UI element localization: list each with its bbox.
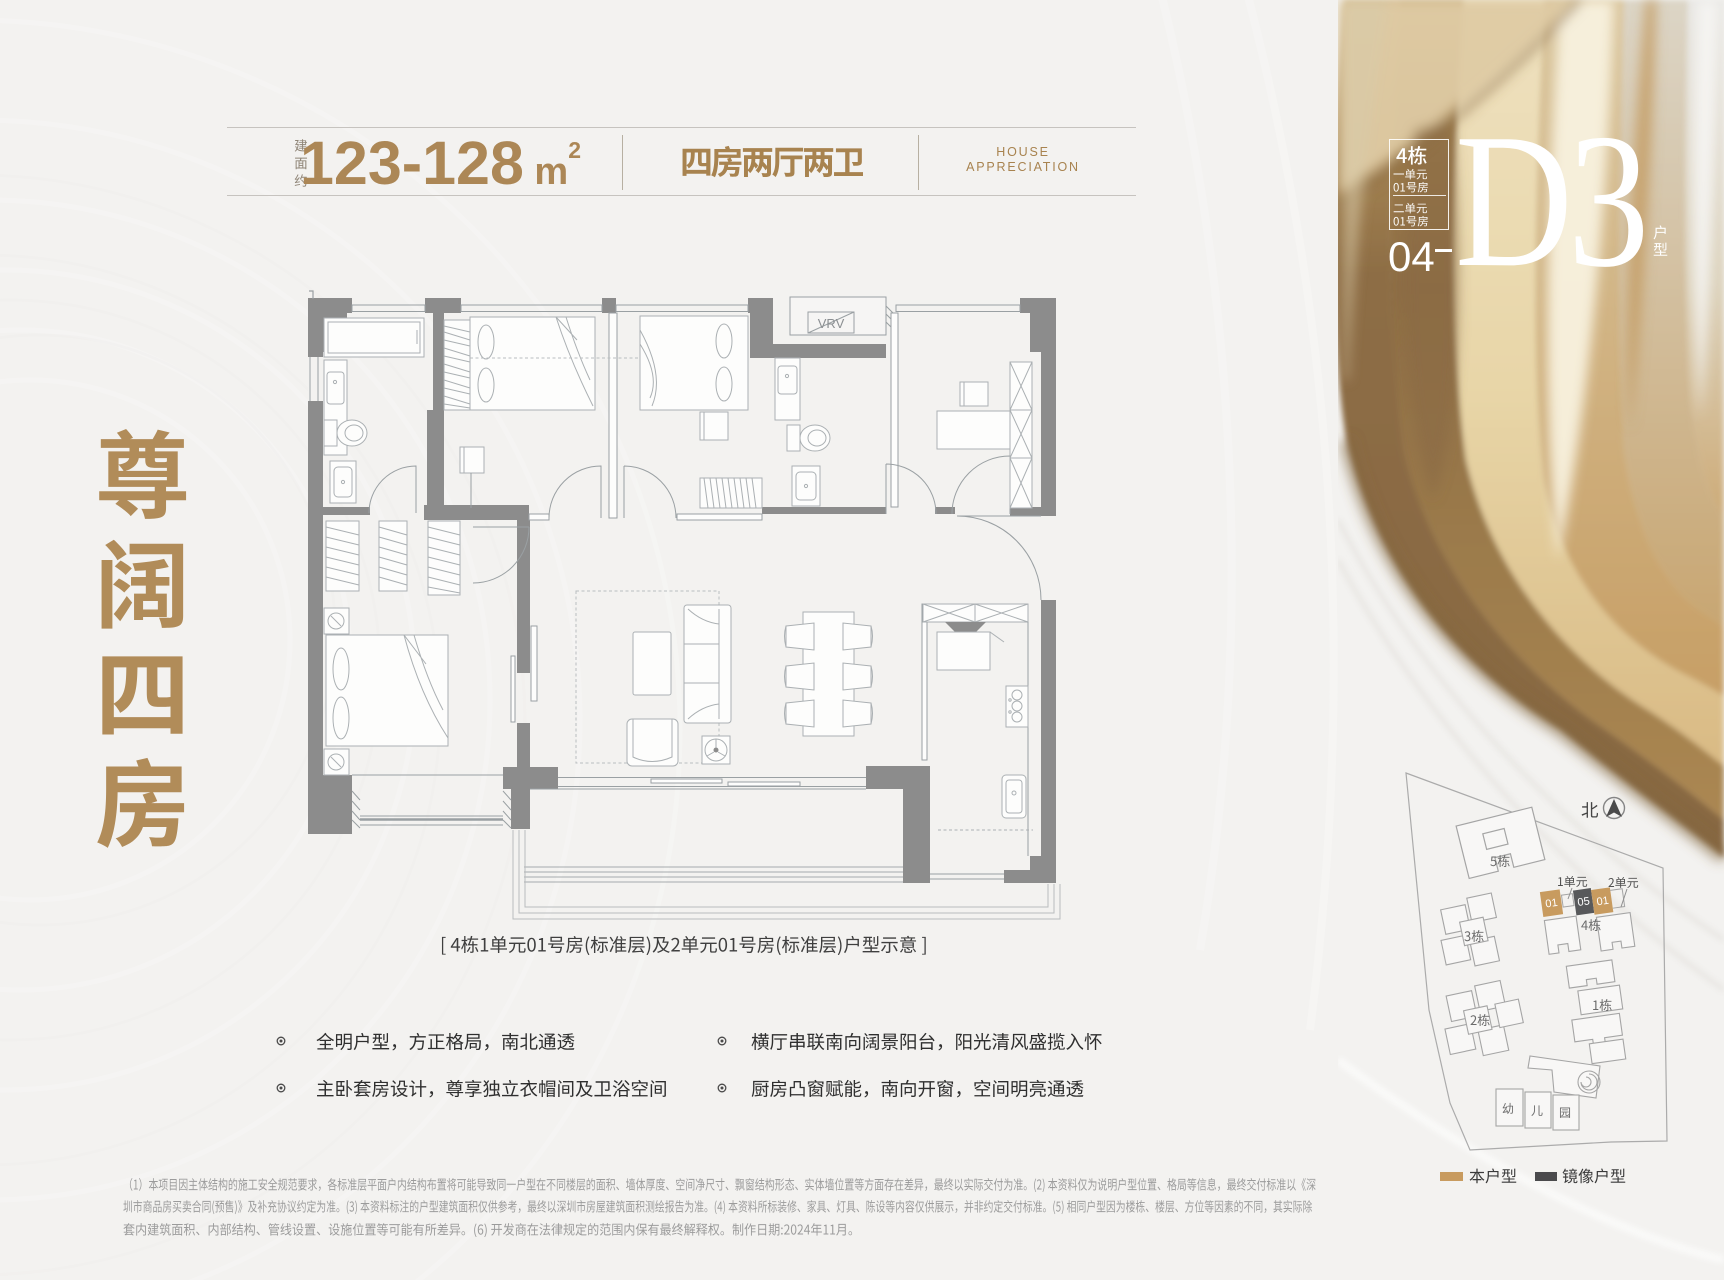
svg-text:05: 05 (1577, 895, 1591, 909)
svg-text:01: 01 (1596, 895, 1610, 909)
svg-text:01: 01 (1545, 897, 1559, 911)
svg-text:VRV: VRV (818, 316, 845, 331)
